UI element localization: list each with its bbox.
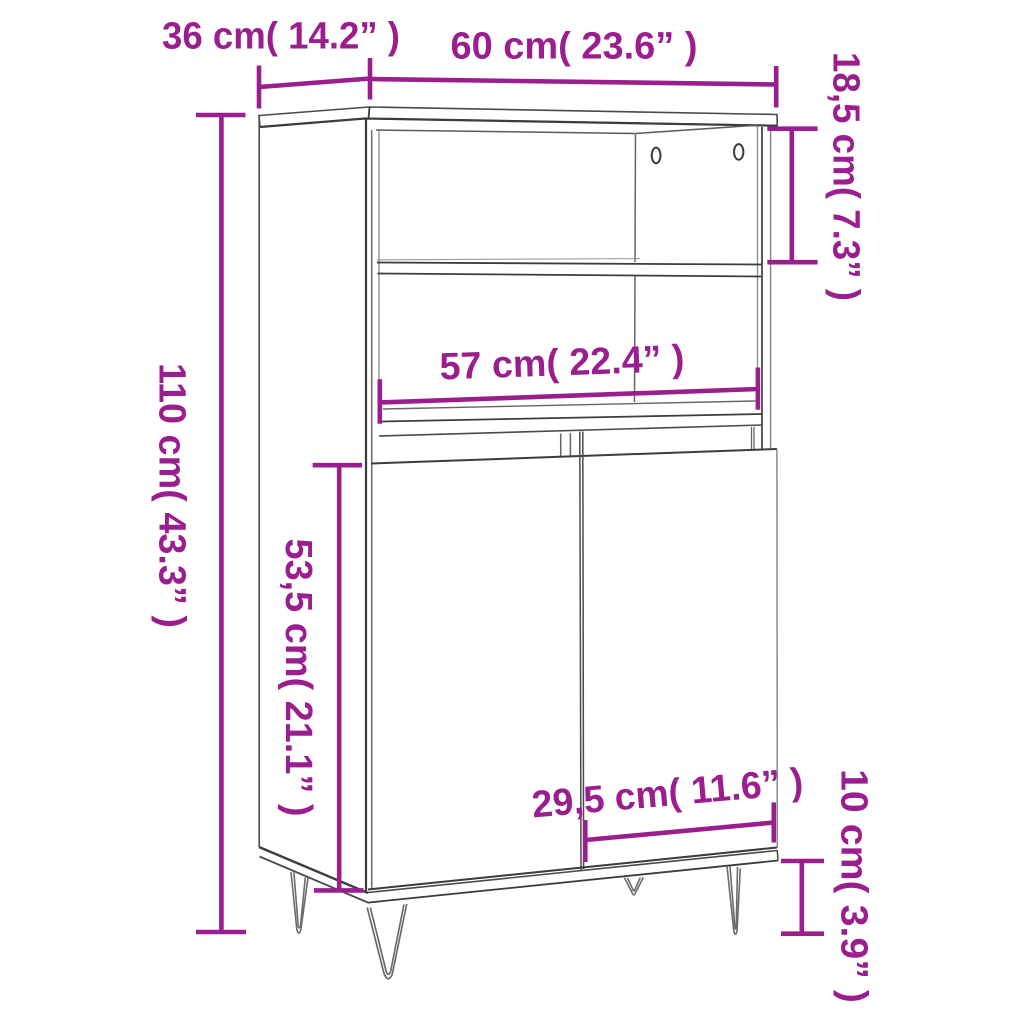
svg-text:110 cm( 43.3” ): 110 cm( 43.3” ) [151, 363, 193, 628]
svg-text:36 cm( 14.2” ): 36 cm( 14.2” ) [162, 16, 400, 58]
svg-text:60 cm( 23.6” ): 60 cm( 23.6” ) [451, 26, 698, 68]
svg-text:18,5 cm( 7.3” ): 18,5 cm( 7.3” ) [825, 52, 867, 301]
svg-text:10 cm( 3.9” ): 10 cm( 3.9” ) [833, 769, 875, 1003]
svg-text:53,5 cm( 21.1” ): 53,5 cm( 21.1” ) [277, 539, 319, 817]
svg-text:57 cm( 22.4” ): 57 cm( 22.4” ) [439, 338, 685, 389]
